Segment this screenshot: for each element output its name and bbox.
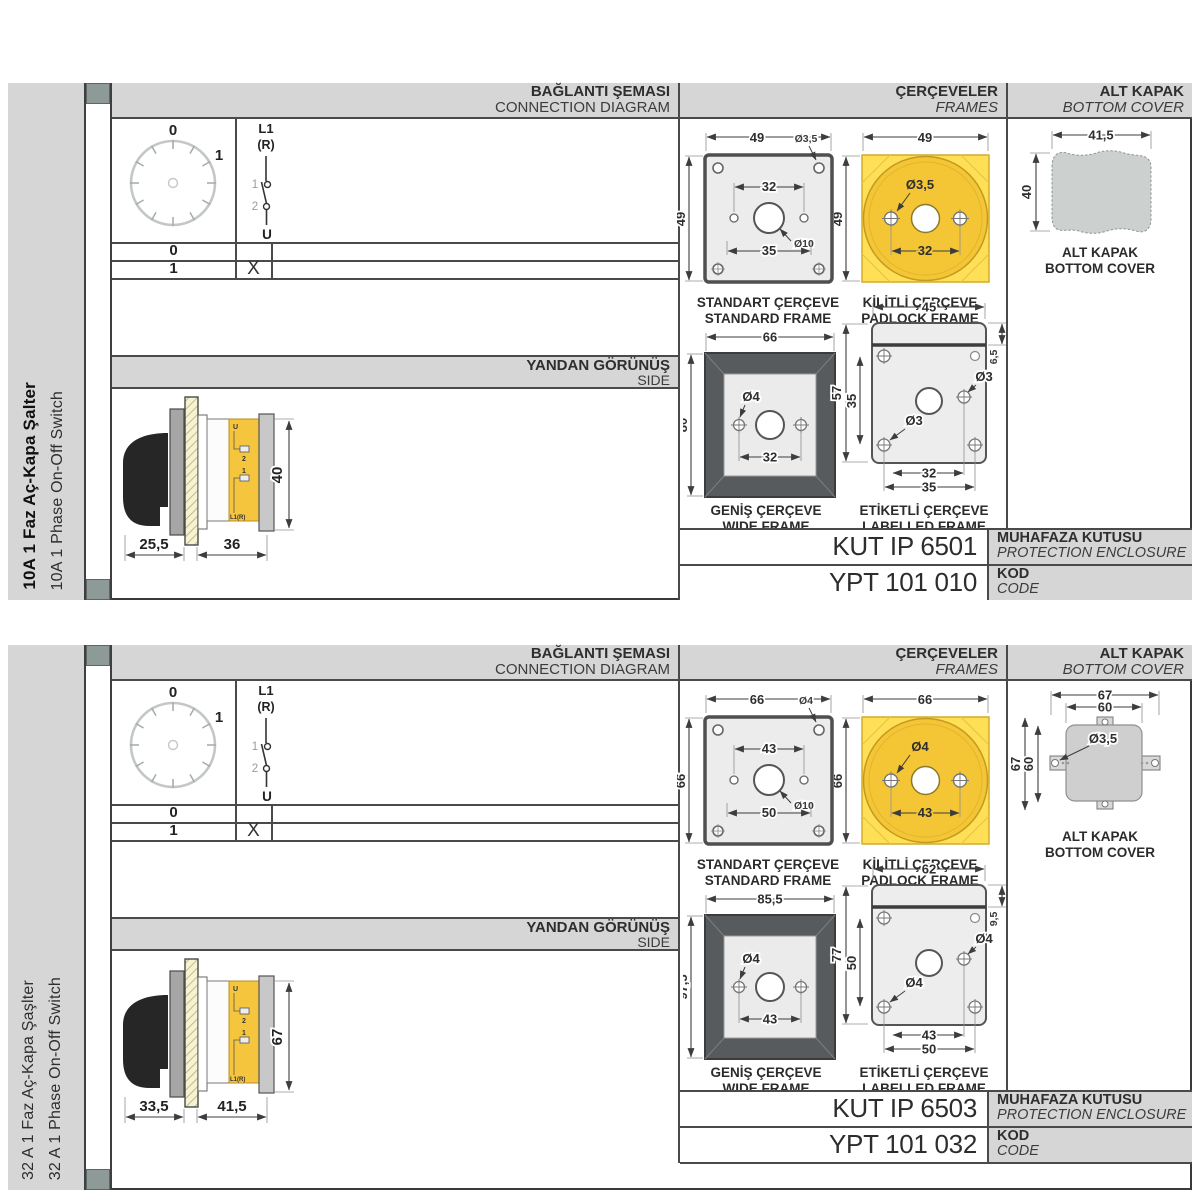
padlock-frame-drawing: 66 66 Ø4 43	[834, 685, 999, 855]
body-label-2: 2	[242, 1018, 246, 1025]
switch-body	[207, 981, 229, 1083]
screw-dia-label: Ø4	[742, 951, 760, 966]
dim-height: 67	[269, 1029, 286, 1046]
bottom-cover-header: ALT KAPAK BOTTOM COVER	[1008, 645, 1192, 679]
dim-label: 43	[918, 805, 932, 820]
connection-header-tr: BAĞLANTI ŞEMASI	[112, 84, 670, 100]
dim-label: 50	[922, 1042, 936, 1057]
product-code-value: YPT 101 032	[680, 1128, 987, 1162]
bottom-cover-drawing-v1: 41,5 40	[1012, 123, 1188, 241]
switch-contact-2: 2	[252, 763, 258, 775]
dim-label: 43	[922, 1028, 936, 1043]
product-sidebar: 10A 1 Faz Aç-Kapa Şalter 10A 1 Phase On-…	[8, 83, 84, 600]
connection-header-en: CONNECTION DIAGRAM	[112, 662, 670, 678]
caption-tr: GENİŞ ÇERÇEVE	[678, 1065, 854, 1081]
enclosure-label-en: PROTECTION ENCLOSURE	[997, 1108, 1192, 1123]
connection-header-en: CONNECTION DIAGRAM	[112, 100, 670, 116]
main-divider	[110, 83, 112, 600]
strip-mark-top	[86, 83, 110, 104]
enclosure-code-label: MUHAFAZA KUTUSU PROTECTION ENCLOSURE	[987, 530, 1192, 564]
codes-line-bottom	[680, 1162, 1192, 1164]
dim-label: 57	[829, 386, 844, 400]
body-label-l1r: L1(R)	[230, 515, 245, 521]
table-row-0-position: 0	[112, 805, 235, 821]
cover-header-tr: ALT KAPAK	[1008, 646, 1184, 662]
dim-label: 66	[763, 330, 777, 345]
code-label-en: CODE	[997, 1144, 1192, 1159]
sidebar-title-tr: 10A 1 Faz Aç-Kapa Şalter	[20, 382, 40, 590]
dim-label: 85,5	[757, 892, 782, 907]
enclosure-code-value: KUT IP 6503	[680, 1092, 987, 1126]
sidebar-title-tr: 32 A 1 Faz Aç-Kapa Şaşlter	[20, 980, 38, 1180]
product-code-label: KOD CODE	[987, 566, 1192, 600]
dim-strip-label: 6,5	[988, 350, 1000, 365]
dim-label: 66	[834, 774, 845, 788]
product-code-label: KOD CODE	[987, 1128, 1192, 1162]
side-view-header: YANDAN GÖRÜNÜŞ SIDE	[112, 355, 678, 389]
code-label-tr: KOD	[997, 1129, 1192, 1144]
enclosure-label-en: PROTECTION ENCLOSURE	[997, 546, 1192, 561]
frames-header: ÇERÇEVELER FRAMES	[680, 83, 1006, 117]
screw-dia-label: Ø4	[975, 931, 993, 946]
dial-position-0: 0	[169, 685, 177, 701]
cover-outline	[1052, 151, 1151, 234]
caption-tr: ETİKETLİ ÇERÇEVE	[840, 1065, 1008, 1081]
padlock-frame-drawing: 49 49 Ø3,5 32	[834, 123, 999, 293]
connection-diagram-header: BAĞLANTI ŞEMASI CONNECTION DIAGRAM	[112, 83, 678, 117]
caption-en: BOTTOM COVER	[1012, 845, 1188, 861]
table-line-bottom	[112, 278, 678, 280]
switch-contact-2: 2	[252, 201, 258, 213]
dim-label: 50	[844, 956, 859, 970]
dim-label: 49	[834, 212, 845, 226]
dim-handle-depth: 25,5	[139, 536, 168, 553]
frames-header-tr: ÇERÇEVELER	[680, 84, 998, 100]
screw-dia-label: Ø3	[975, 369, 992, 384]
body-label-u: U	[233, 424, 238, 431]
dim-label: 45	[922, 300, 936, 315]
dim-label: 97,5	[683, 974, 690, 999]
strip-mark-bottom	[86, 1169, 110, 1190]
table-row-1-mark: X	[236, 260, 271, 278]
dim-label: 41,5	[1088, 128, 1113, 143]
dim-label: 43	[762, 741, 776, 756]
bottom-cover-block: 67 60 67 60 Ø3,5	[1010, 685, 1190, 861]
panel-cross-section	[185, 397, 198, 545]
screw-dia-label: Ø4	[905, 975, 923, 990]
switch-handle	[123, 433, 168, 526]
table-row-1-position: 1	[112, 823, 235, 839]
dim-label: 60	[1098, 700, 1112, 715]
bottom-cover-block: 41,5 40	[1010, 123, 1190, 277]
dial-position-1: 1	[215, 147, 223, 164]
enclosure-code-label: MUHAFAZA KUTUSU PROTECTION ENCLOSURE	[987, 1092, 1192, 1126]
body-label-l1r: L1(R)	[230, 1077, 245, 1083]
strip-mark-top	[86, 645, 110, 666]
bottom-cover-caption: ALT KAPAK BOTTOM COVER	[1012, 245, 1188, 277]
dim-label: 49	[750, 130, 764, 145]
caption-en: BOTTOM COVER	[1012, 261, 1188, 277]
body-label-2: 2	[242, 456, 246, 463]
dim-label: 49	[677, 212, 688, 226]
side-header-tr: YANDAN GÖRÜNÜŞ	[112, 920, 670, 935]
dim-label: 66	[677, 774, 688, 788]
dim-strip-label: 9,5	[988, 912, 1000, 927]
dim-label: 35	[762, 243, 776, 258]
enclosure-label-tr: MUHAFAZA KUTUSU	[997, 531, 1192, 546]
body-label-u: U	[233, 986, 238, 993]
body-label-1: 1	[242, 1030, 246, 1037]
dim-handle-depth: 33,5	[139, 1098, 168, 1115]
side-view-drawing: U 2 1 L1(R) 40 25,5 36	[116, 385, 326, 580]
side-header-tr: YANDAN GÖRÜNÜŞ	[112, 358, 670, 373]
dim-label: 77	[829, 948, 844, 962]
screw-dia-label: Ø4	[911, 739, 929, 754]
standard-frame-drawing: 66 66 Ø4 43 Ø10 50	[677, 685, 842, 855]
product-code-value: YPT 101 010	[680, 566, 987, 600]
screw-dia-label: Ø4	[742, 389, 760, 404]
switch-symbol-drawing: L1 (R) 1 2 U	[236, 119, 306, 243]
dim-label: 43	[763, 1012, 777, 1027]
bottom-cover-drawing-v2: 67 60 67 60 Ø3,5	[1010, 685, 1190, 825]
labelled-frame-drawing: 62 9,5 77 50 Ø4 Ø4	[816, 857, 1012, 1059]
table-line-bottom	[112, 840, 678, 842]
dim-label: 49	[918, 130, 932, 145]
product-section: 10A 1 Faz Aç-Kapa Şalter 10A 1 Phase On-…	[8, 83, 1192, 600]
rotary-dial-drawing: 0 1	[126, 685, 236, 797]
switch-terminal-l1: L1	[258, 683, 273, 698]
mounting-flange	[170, 409, 184, 535]
switch-contact-1: 1	[252, 179, 258, 191]
table-row-1-position: 1	[112, 261, 235, 277]
diagram-divider	[235, 681, 237, 841]
cover-header-tr: ALT KAPAK	[1008, 84, 1184, 100]
side-view-header: YANDAN GÖRÜNÜŞ SIDE	[112, 917, 678, 951]
dim-label: 60	[1021, 757, 1036, 771]
switch-body	[207, 419, 229, 521]
dim-label: 32	[922, 466, 936, 481]
bottom-cover-caption: ALT KAPAK BOTTOM COVER	[1012, 829, 1188, 861]
dim-label: 66	[750, 692, 764, 707]
enclosure-label-tr: MUHAFAZA KUTUSU	[997, 1093, 1192, 1108]
switch-terminal-r: (R)	[257, 138, 274, 152]
switch-terminal-r: (R)	[257, 700, 274, 714]
dim-label: 32	[762, 179, 776, 194]
dim-label: 80	[683, 418, 690, 432]
standard-frame-drawing: 49 49 Ø3,5 32 Ø10 35	[677, 123, 842, 293]
dim-height: 40	[269, 467, 286, 484]
side-view-drawing: U 2 1 L1(R) 67 33,5 41,5	[116, 947, 326, 1142]
binding-strip	[86, 645, 110, 1190]
cover-header-en: BOTTOM COVER	[1008, 100, 1184, 116]
switch-terminal-u: U	[262, 789, 272, 804]
panel-cross-section	[185, 959, 198, 1107]
connection-diagram-header: BAĞLANTI ŞEMASI CONNECTION DIAGRAM	[112, 645, 678, 679]
dim-label: 66	[918, 692, 932, 707]
switch-terminal-u: U	[262, 227, 272, 242]
dim-label: 32	[918, 243, 932, 258]
strip-mark-bottom	[86, 579, 110, 600]
product-section: 32 A 1 Faz Aç-Kapa Şaşlter 32 A 1 Phase …	[8, 645, 1192, 1190]
dim-body-depth: 41,5	[217, 1098, 246, 1115]
binding-strip	[86, 83, 110, 600]
enclosure-code-value: KUT IP 6501	[680, 530, 987, 564]
screw-dia-label: Ø3,5	[1089, 731, 1117, 746]
screw-dia-label: Ø3,5	[906, 177, 934, 192]
caption-tr: ALT KAPAK	[1012, 829, 1188, 845]
connection-header-tr: BAĞLANTI ŞEMASI	[112, 646, 670, 662]
dim-body-depth: 36	[224, 536, 241, 553]
screw-dia-label: Ø3	[905, 413, 922, 428]
bottom-cover-header: ALT KAPAK BOTTOM COVER	[1008, 83, 1192, 117]
sidebar-title-en: 10A 1 Phase On-Off Switch	[49, 391, 67, 590]
switch-terminal-l1: L1	[258, 121, 273, 136]
dial-position-1: 1	[215, 709, 223, 726]
caption-tr: ETİKETLİ ÇERÇEVE	[840, 503, 1008, 519]
table-row-0-position: 0	[112, 243, 235, 259]
caption-tr: GENİŞ ÇERÇEVE	[678, 503, 854, 519]
screw-dia-label: Ø3,5	[795, 133, 818, 145]
catalog-page: 10A 1 Faz Aç-Kapa Şalter 10A 1 Phase On-…	[0, 0, 1200, 1200]
code-label-en: CODE	[997, 582, 1192, 597]
table-cell-divider	[271, 804, 273, 841]
dim-label: 50	[762, 805, 776, 820]
frames-header-en: FRAMES	[680, 662, 998, 678]
product-sidebar: 32 A 1 Faz Aç-Kapa Şaşlter 32 A 1 Phase …	[8, 645, 84, 1190]
rotary-dial-drawing: 0 1	[126, 123, 236, 235]
switch-contact-1: 1	[252, 741, 258, 753]
enclosure-code-row: KUT IP 6503 MUHAFAZA KUTUSU PROTECTION E…	[680, 1092, 1192, 1126]
table-cell-divider	[271, 242, 273, 279]
switch-handle	[123, 995, 168, 1088]
frames-header-tr: ÇERÇEVELER	[680, 646, 998, 662]
product-code-row: YPT 101 032 KOD CODE	[680, 1128, 1192, 1162]
sidebar-title-en: 32 A 1 Phase On-Off Switch	[47, 977, 65, 1180]
screw-dia-label: Ø4	[799, 695, 813, 707]
dim-label: 32	[763, 450, 777, 465]
frames-header: ÇERÇEVELER FRAMES	[680, 645, 1006, 679]
mounting-flange	[170, 971, 184, 1097]
dial-position-0: 0	[169, 123, 177, 139]
caption-tr: ALT KAPAK	[1012, 245, 1188, 261]
enclosure-code-row: KUT IP 6501 MUHAFAZA KUTUSU PROTECTION E…	[680, 530, 1192, 564]
table-row-1-mark: X	[236, 822, 271, 840]
labelled-frame-drawing: 45 6,5 57 35 Ø3 Ø3	[816, 295, 1012, 497]
switch-symbol-drawing: L1 (R) 1 2 U	[236, 681, 306, 805]
product-code-row: YPT 101 010 KOD CODE	[680, 566, 1192, 600]
dim-label: 35	[922, 480, 936, 495]
cover-header-en: BOTTOM COVER	[1008, 662, 1184, 678]
dim-label: 40	[1019, 185, 1034, 199]
dim-label: 62	[922, 862, 936, 877]
diagram-divider	[235, 119, 237, 279]
body-label-1: 1	[242, 468, 246, 475]
dim-label: 35	[844, 394, 859, 408]
frames-header-en: FRAMES	[680, 100, 998, 116]
code-label-tr: KOD	[997, 567, 1192, 582]
